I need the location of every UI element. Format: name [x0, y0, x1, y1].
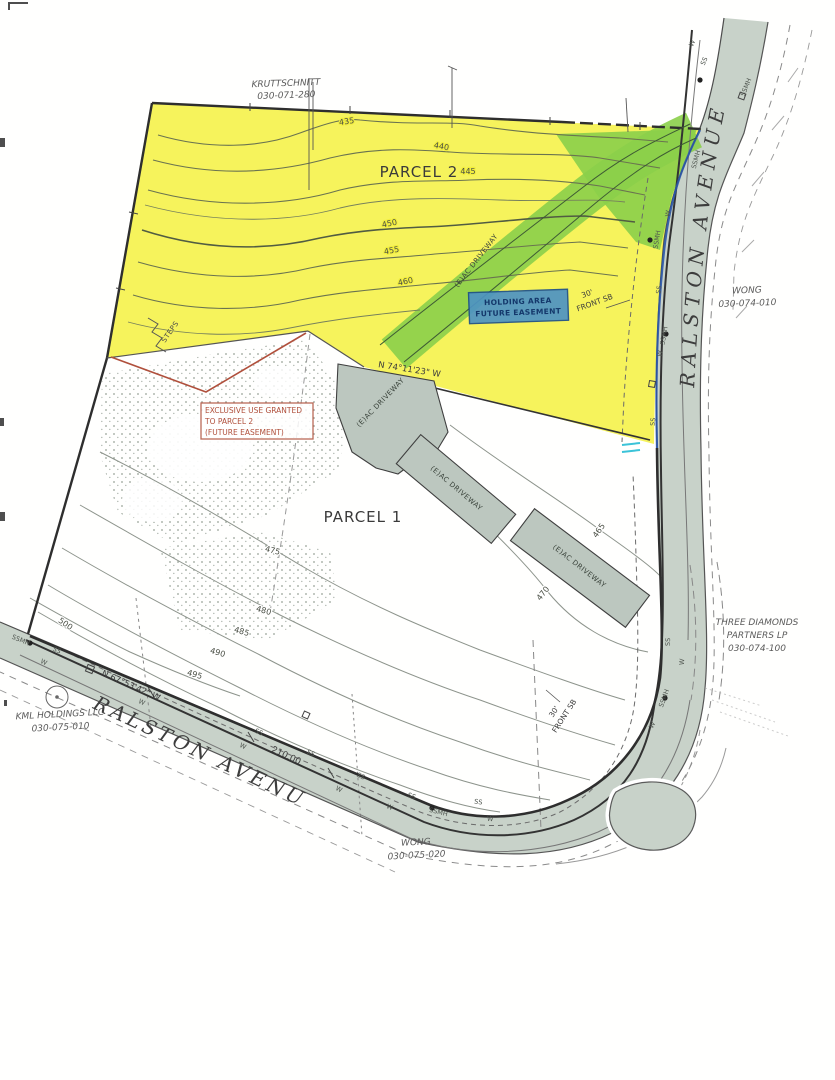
svg-text:W: W: [678, 658, 687, 666]
svg-text:445: 445: [460, 167, 475, 176]
svg-text:WONG: WONG: [732, 285, 762, 296]
red-easement-line3: (FUTURE EASEMENT): [205, 428, 284, 437]
parcel1-label: PARCEL 1: [324, 508, 403, 526]
svg-text:030-071-280: 030-071-280: [257, 90, 316, 102]
red-easement-box: EXCLUSIVE USE GRANTED TO PARCEL 2 (FUTUR…: [201, 403, 313, 439]
svg-text:THREE DIAMONDS: THREE DIAMONDS: [716, 618, 799, 628]
svg-text:SS: SS: [474, 797, 483, 806]
blue-easement-box: HOLDING AREA FUTURE EASEMENT: [469, 289, 569, 323]
svg-text:SS: SS: [664, 638, 672, 647]
svg-text:030-074-010: 030-074-010: [718, 298, 777, 310]
parcel2-label: PARCEL 2: [380, 163, 459, 181]
red-easement-line2: TO PARCEL 2: [204, 417, 253, 426]
svg-text:PARTNERS LP: PARTNERS LP: [727, 631, 788, 641]
svg-text:SS: SS: [654, 285, 663, 294]
parcel-map: HOLDING AREA FUTURE EASEMENT EXCLUSIVE U…: [0, 0, 835, 1080]
traffic-island: [610, 782, 696, 850]
scanned-parcel-map-page: HOLDING AREA FUTURE EASEMENT EXCLUSIVE U…: [0, 0, 835, 1080]
red-easement-line1: EXCLUSIVE USE GRANTED: [205, 406, 302, 415]
svg-text:SS: SS: [649, 417, 658, 426]
svg-text:WONG: WONG: [401, 837, 431, 849]
svg-text:030-074-100: 030-074-100: [728, 644, 786, 654]
